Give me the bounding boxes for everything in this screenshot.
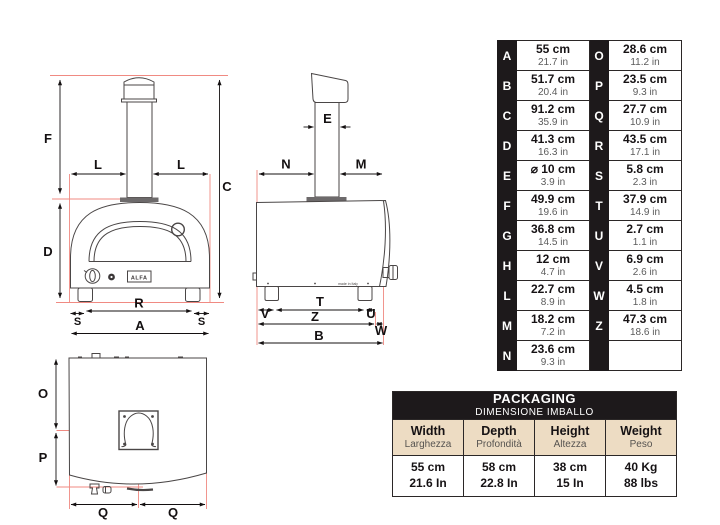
dim-label-w: W (375, 323, 388, 338)
alfa-logo-text: ALFA (131, 276, 148, 282)
dim-label-o: O (38, 386, 48, 401)
dim-in: 19.6 in (517, 207, 589, 218)
dim-label-p: P (39, 450, 48, 465)
dim-label-n: N (281, 157, 290, 172)
packaging-header-row: PACKAGING DIMENSIONE IMBALLO (393, 392, 677, 420)
dim-letter: P (590, 71, 609, 101)
dim-label-a: A (135, 318, 145, 333)
dim-cm: 18.2 cm (517, 313, 589, 327)
dim-in: 8.9 in (517, 297, 589, 308)
oven-body (257, 201, 390, 287)
dim-letter: E (498, 161, 517, 191)
table-row: F 49.9 cm19.6 in T 37.9 cm14.9 in (498, 191, 682, 221)
dim-value: ⌀ 10 cm3.9 in (517, 161, 590, 191)
dim-value: 55 cm21.7 in (517, 41, 590, 71)
dim-cm: 28.6 cm (609, 43, 681, 57)
dim-value: 47.3 cm18.6 in (609, 311, 682, 341)
dim-label-d: D (43, 244, 52, 259)
table-row: N 23.6 cm9.3 in (498, 341, 682, 371)
dim-cm: 47.3 cm (609, 313, 681, 327)
table-row: A 55 cm21.7 in O 28.6 cm11.2 in (498, 41, 682, 71)
dim-cm: 36.8 cm (517, 223, 589, 237)
table-row: D 41.3 cm16.3 in R 43.5 cm17.1 in (498, 131, 682, 161)
dim-letter: C (498, 101, 517, 131)
dim-value: 41.3 cm16.3 in (517, 131, 590, 161)
dim-value: 37.9 cm14.9 in (609, 191, 682, 221)
dim-value: 91.2 cm35.9 in (517, 101, 590, 131)
table-row: M 18.2 cm7.2 in Z 47.3 cm18.6 in (498, 311, 682, 341)
side-oven-outline (253, 74, 398, 301)
dim-label-b: B (314, 328, 323, 343)
dim-letter: O (590, 41, 609, 71)
table-row: G 36.8 cm14.5 in U 2.7 cm1.1 in (498, 221, 682, 251)
dim-in: 11.2 in (609, 57, 681, 68)
side-view-diagram: made in Italy E N M T V U Z W B (240, 60, 452, 360)
dim-cm: 43.5 cm (609, 133, 681, 147)
dim-value: 4.5 cm1.8 in (609, 281, 682, 311)
dim-in: 17.1 in (609, 147, 681, 158)
dim-letter: D (498, 131, 517, 161)
dim-in: 4.7 in (517, 267, 589, 278)
side-leg-left (265, 287, 279, 301)
packaging-value-depth: 58 cm22.8 In (464, 456, 535, 497)
bottom-seam (127, 489, 153, 491)
table-row: E ⌀ 10 cm3.9 in S 5.8 cm2.3 in (498, 161, 682, 191)
packaging-col-depth: DepthProfondità (464, 420, 535, 456)
dim-cm: 91.2 cm (517, 103, 589, 117)
dim-cm: 41.3 cm (517, 133, 589, 147)
dim-in: 1.8 in (609, 297, 681, 308)
dim-label-f: F (44, 131, 52, 146)
dim-in: 2.3 in (609, 177, 681, 188)
table-row: L 22.7 cm8.9 in W 4.5 cm1.8 in (498, 281, 682, 311)
dim-cm: 12 cm (517, 253, 589, 267)
dim-value: 6.9 cm2.6 in (609, 251, 682, 281)
dim-letter: R (590, 131, 609, 161)
chimney-pipe (127, 102, 152, 198)
dim-letter: G (498, 221, 517, 251)
dim-value: 36.8 cm14.5 in (517, 221, 590, 251)
dim-cm: 27.7 cm (609, 103, 681, 117)
dim-letter: Q (590, 101, 609, 131)
bottom-base-outline (69, 354, 207, 495)
top-tab (92, 354, 100, 359)
gas-fittings (90, 484, 111, 494)
dim-in: 16.3 in (517, 147, 589, 158)
dim-letter: T (590, 191, 609, 221)
dim-letter: H (498, 251, 517, 281)
dim-cm: 49.9 cm (517, 193, 589, 207)
dim-in: 2.6 in (609, 267, 681, 278)
packaging-values-row: 55 cm21.6 In 58 cm22.8 In 38 cm15 In 40 … (393, 456, 677, 497)
packaging-value-weight: 40 Kg88 lbs (606, 456, 677, 497)
dim-in: 14.5 in (517, 237, 589, 248)
dim-value: 28.6 cm11.2 in (609, 41, 682, 71)
dim-letter (590, 341, 609, 371)
front-oven-outline (71, 78, 210, 302)
base-plate (69, 358, 207, 484)
dim-label-q2: Q (168, 505, 178, 520)
dim-label-l2: L (177, 157, 185, 172)
packaging-value-width: 55 cm21.6 In (393, 456, 464, 497)
dim-letter: N (498, 341, 517, 371)
packaging-col-height: HeightAltezza (535, 420, 606, 456)
dim-cm: ⌀ 10 cm (517, 163, 589, 177)
dim-value: 27.7 cm10.9 in (609, 101, 682, 131)
dim-label-s1: S (74, 316, 81, 328)
bottom-view-diagram: O P Q Q (30, 345, 230, 525)
chimney-flange (120, 198, 159, 203)
dim-in: 14.9 in (609, 207, 681, 218)
dim-cm: 5.8 cm (609, 163, 681, 177)
dim-cm: 2.7 cm (609, 223, 681, 237)
made-in-italy-text: made in Italy (338, 282, 358, 286)
dim-letter: M (498, 311, 517, 341)
dim-cm: 23.6 cm (517, 343, 589, 357)
packaging-table: PACKAGING DIMENSIONE IMBALLO WidthLarghe… (392, 391, 677, 497)
dim-label-t: T (316, 294, 324, 309)
packaging-value-height: 38 cm15 In (535, 456, 606, 497)
dim-cm: 22.7 cm (517, 283, 589, 297)
dim-value: 23.6 cm9.3 in (517, 341, 590, 371)
dim-value: 5.8 cm2.3 in (609, 161, 682, 191)
alfa-oven-spec-sheet: ALFA F C D L L R S S A (0, 0, 720, 525)
dim-in: 21.7 in (517, 57, 589, 68)
dim-label-q1: Q (98, 505, 108, 520)
front-leg-left (78, 288, 93, 302)
dim-value: 43.5 cm17.1 in (609, 131, 682, 161)
table-row: B 51.7 cm20.4 in P 23.5 cm9.3 in (498, 71, 682, 101)
chimney-cap (124, 78, 154, 99)
dim-cm: 23.5 cm (609, 73, 681, 87)
dim-label-v: V (261, 306, 270, 321)
packaging-title: PACKAGING (393, 392, 676, 406)
dim-value: 2.7 cm1.1 in (609, 221, 682, 251)
dim-letter: U (590, 221, 609, 251)
dim-label-e: E (323, 111, 332, 126)
dim-value: 49.9 cm19.6 in (517, 191, 590, 221)
dim-value: 51.7 cm20.4 in (517, 71, 590, 101)
dim-cm: 51.7 cm (517, 73, 589, 87)
packaging-column-headers: WidthLarghezza DepthProfondità HeightAlt… (393, 420, 677, 456)
table-row: C 91.2 cm35.9 in Q 27.7 cm10.9 in (498, 101, 682, 131)
dim-letter: V (590, 251, 609, 281)
dim-letter: A (498, 41, 517, 71)
dim-cm: 37.9 cm (609, 193, 681, 207)
dim-letter: S (590, 161, 609, 191)
dim-in: 7.2 in (517, 327, 589, 338)
dim-in: 35.9 in (517, 117, 589, 128)
dim-letter: L (498, 281, 517, 311)
dim-cm: 55 cm (517, 43, 589, 57)
dim-in: 3.9 in (517, 177, 589, 188)
dim-value: 12 cm4.7 in (517, 251, 590, 281)
chimney-cap (312, 74, 349, 103)
dim-in: 9.3 in (517, 357, 589, 368)
dim-letter: F (498, 191, 517, 221)
dim-label-z: Z (311, 309, 319, 324)
dim-cm: 4.5 cm (609, 283, 681, 297)
side-tab (253, 273, 257, 280)
dim-value (609, 341, 682, 371)
dim-in: 18.6 in (609, 327, 681, 338)
dim-letter: Z (590, 311, 609, 341)
table-row: H 12 cm4.7 in V 6.9 cm2.6 in (498, 251, 682, 281)
packaging-col-weight: WeightPeso (606, 420, 677, 456)
dim-label-r: R (134, 296, 144, 311)
dim-label-l1: L (94, 157, 102, 172)
dimension-table: A 55 cm21.7 in O 28.6 cm11.2 in B 51.7 c… (497, 40, 682, 371)
front-leg-right (186, 288, 201, 302)
dim-in: 20.4 in (517, 87, 589, 98)
dim-label-c: C (222, 179, 232, 194)
front-view-diagram: ALFA F C D L L R S S A (0, 0, 240, 345)
dim-in: 1.1 in (609, 237, 681, 248)
dim-in: 10.9 in (609, 117, 681, 128)
dim-label-m: M (356, 157, 367, 172)
dim-value: 23.5 cm9.3 in (609, 71, 682, 101)
packaging-subtitle: DIMENSIONE IMBALLO (393, 407, 676, 419)
dim-value: 18.2 cm7.2 in (517, 311, 590, 341)
dim-cm: 6.9 cm (609, 253, 681, 267)
dim-label-u: U (366, 306, 375, 321)
dim-letter: W (590, 281, 609, 311)
dim-letter: B (498, 71, 517, 101)
dim-in: 9.3 in (609, 87, 681, 98)
side-leg-right (358, 287, 372, 301)
dim-label-s2: S (198, 316, 205, 328)
dim-value: 22.7 cm8.9 in (517, 281, 590, 311)
packaging-col-width: WidthLarghezza (393, 420, 464, 456)
